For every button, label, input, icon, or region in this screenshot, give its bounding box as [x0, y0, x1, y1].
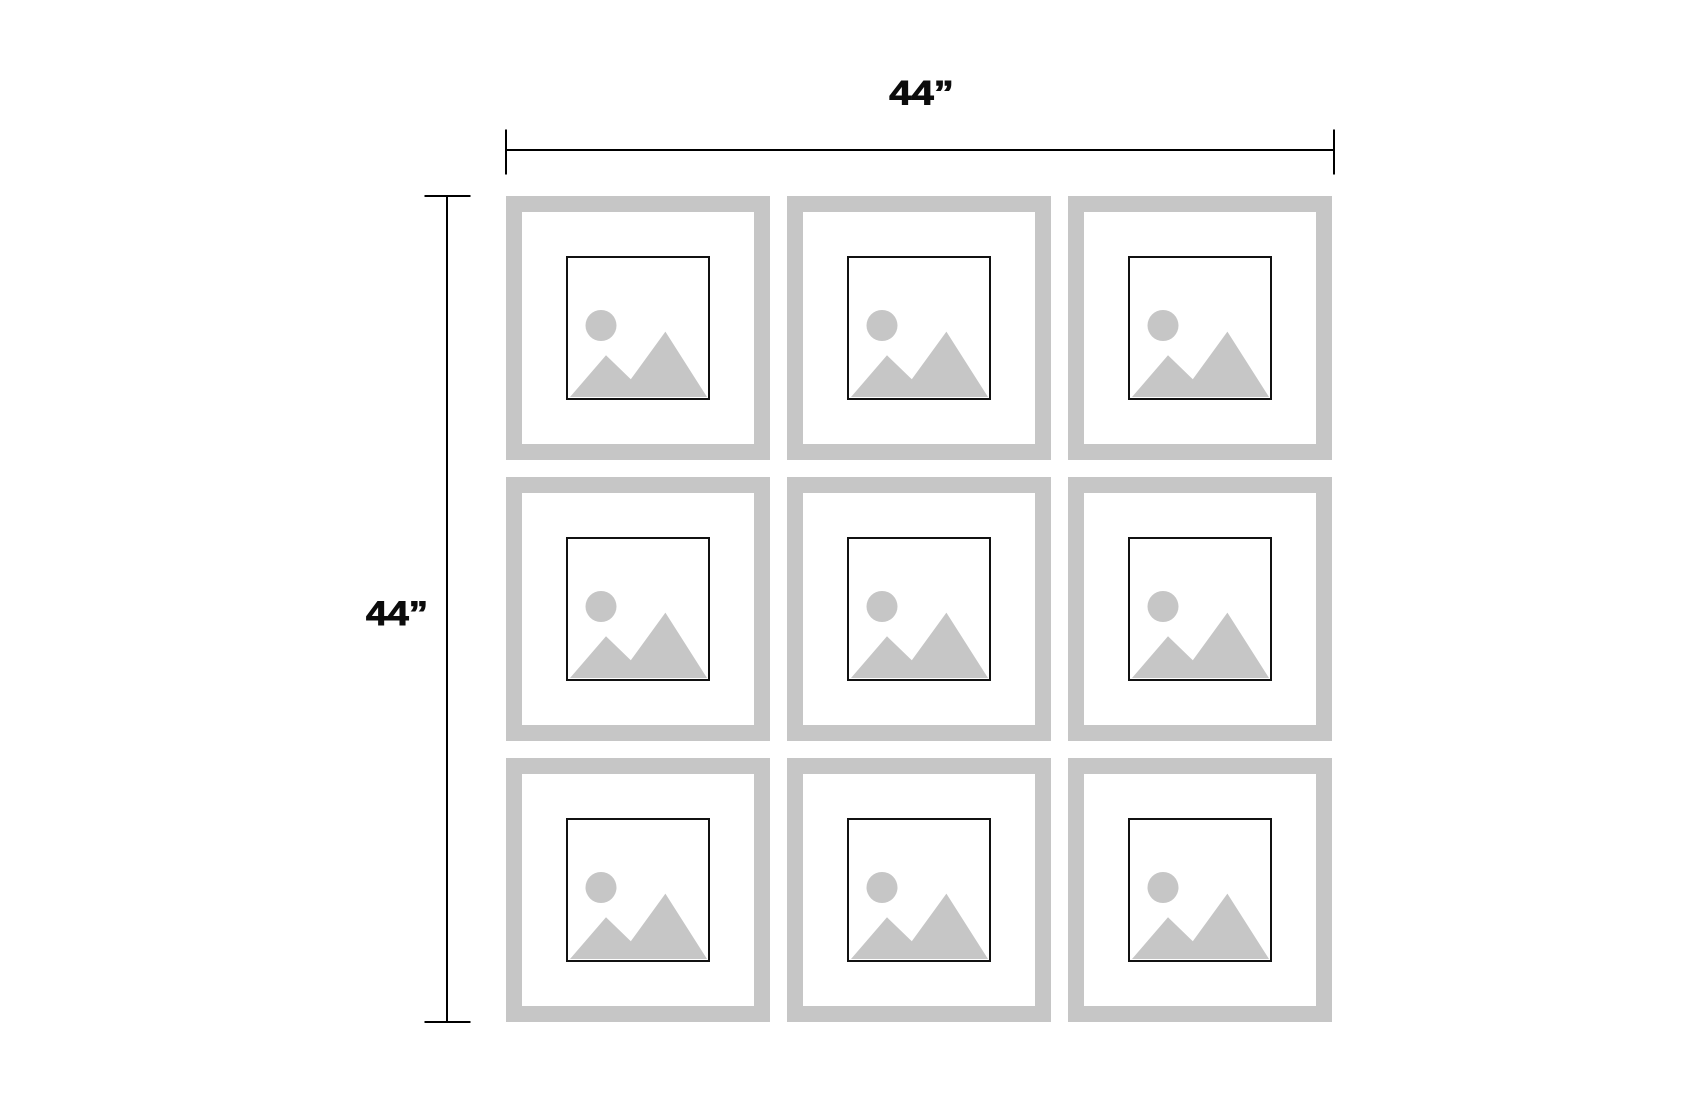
svg-text:44”: 44”: [889, 75, 954, 113]
svg-text:44”: 44”: [366, 595, 428, 633]
